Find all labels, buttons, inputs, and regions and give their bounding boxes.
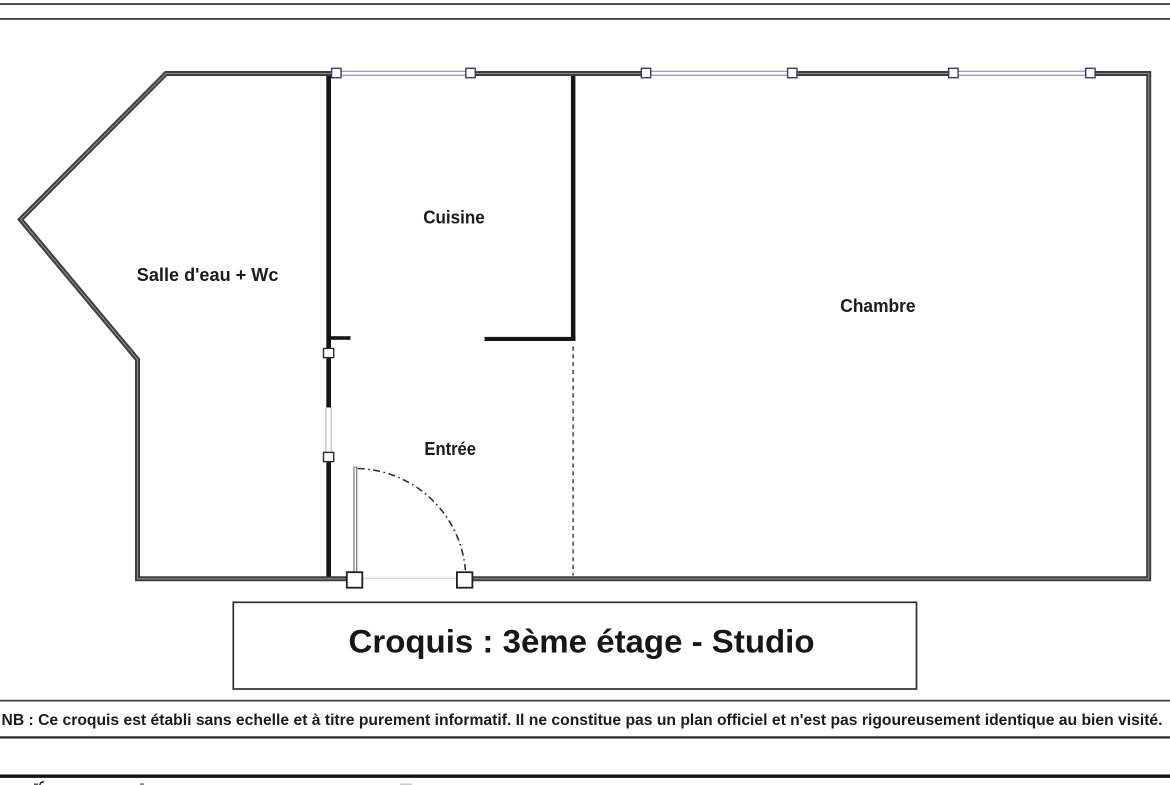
svg-text:Salle d'eau + Wc: Salle d'eau + Wc xyxy=(137,265,279,285)
svg-text:NB : Ce croquis est établi san: NB : Ce croquis est établi sans echelle … xyxy=(2,712,1163,729)
svg-text:Cuisine: Cuisine xyxy=(423,208,485,228)
svg-text:Entrée: Entrée xyxy=(424,439,476,459)
svg-text:Croquis : 3ème étage - Studio: Croquis : 3ème étage - Studio xyxy=(349,624,815,660)
svg-text:Chambre: Chambre xyxy=(840,296,915,316)
